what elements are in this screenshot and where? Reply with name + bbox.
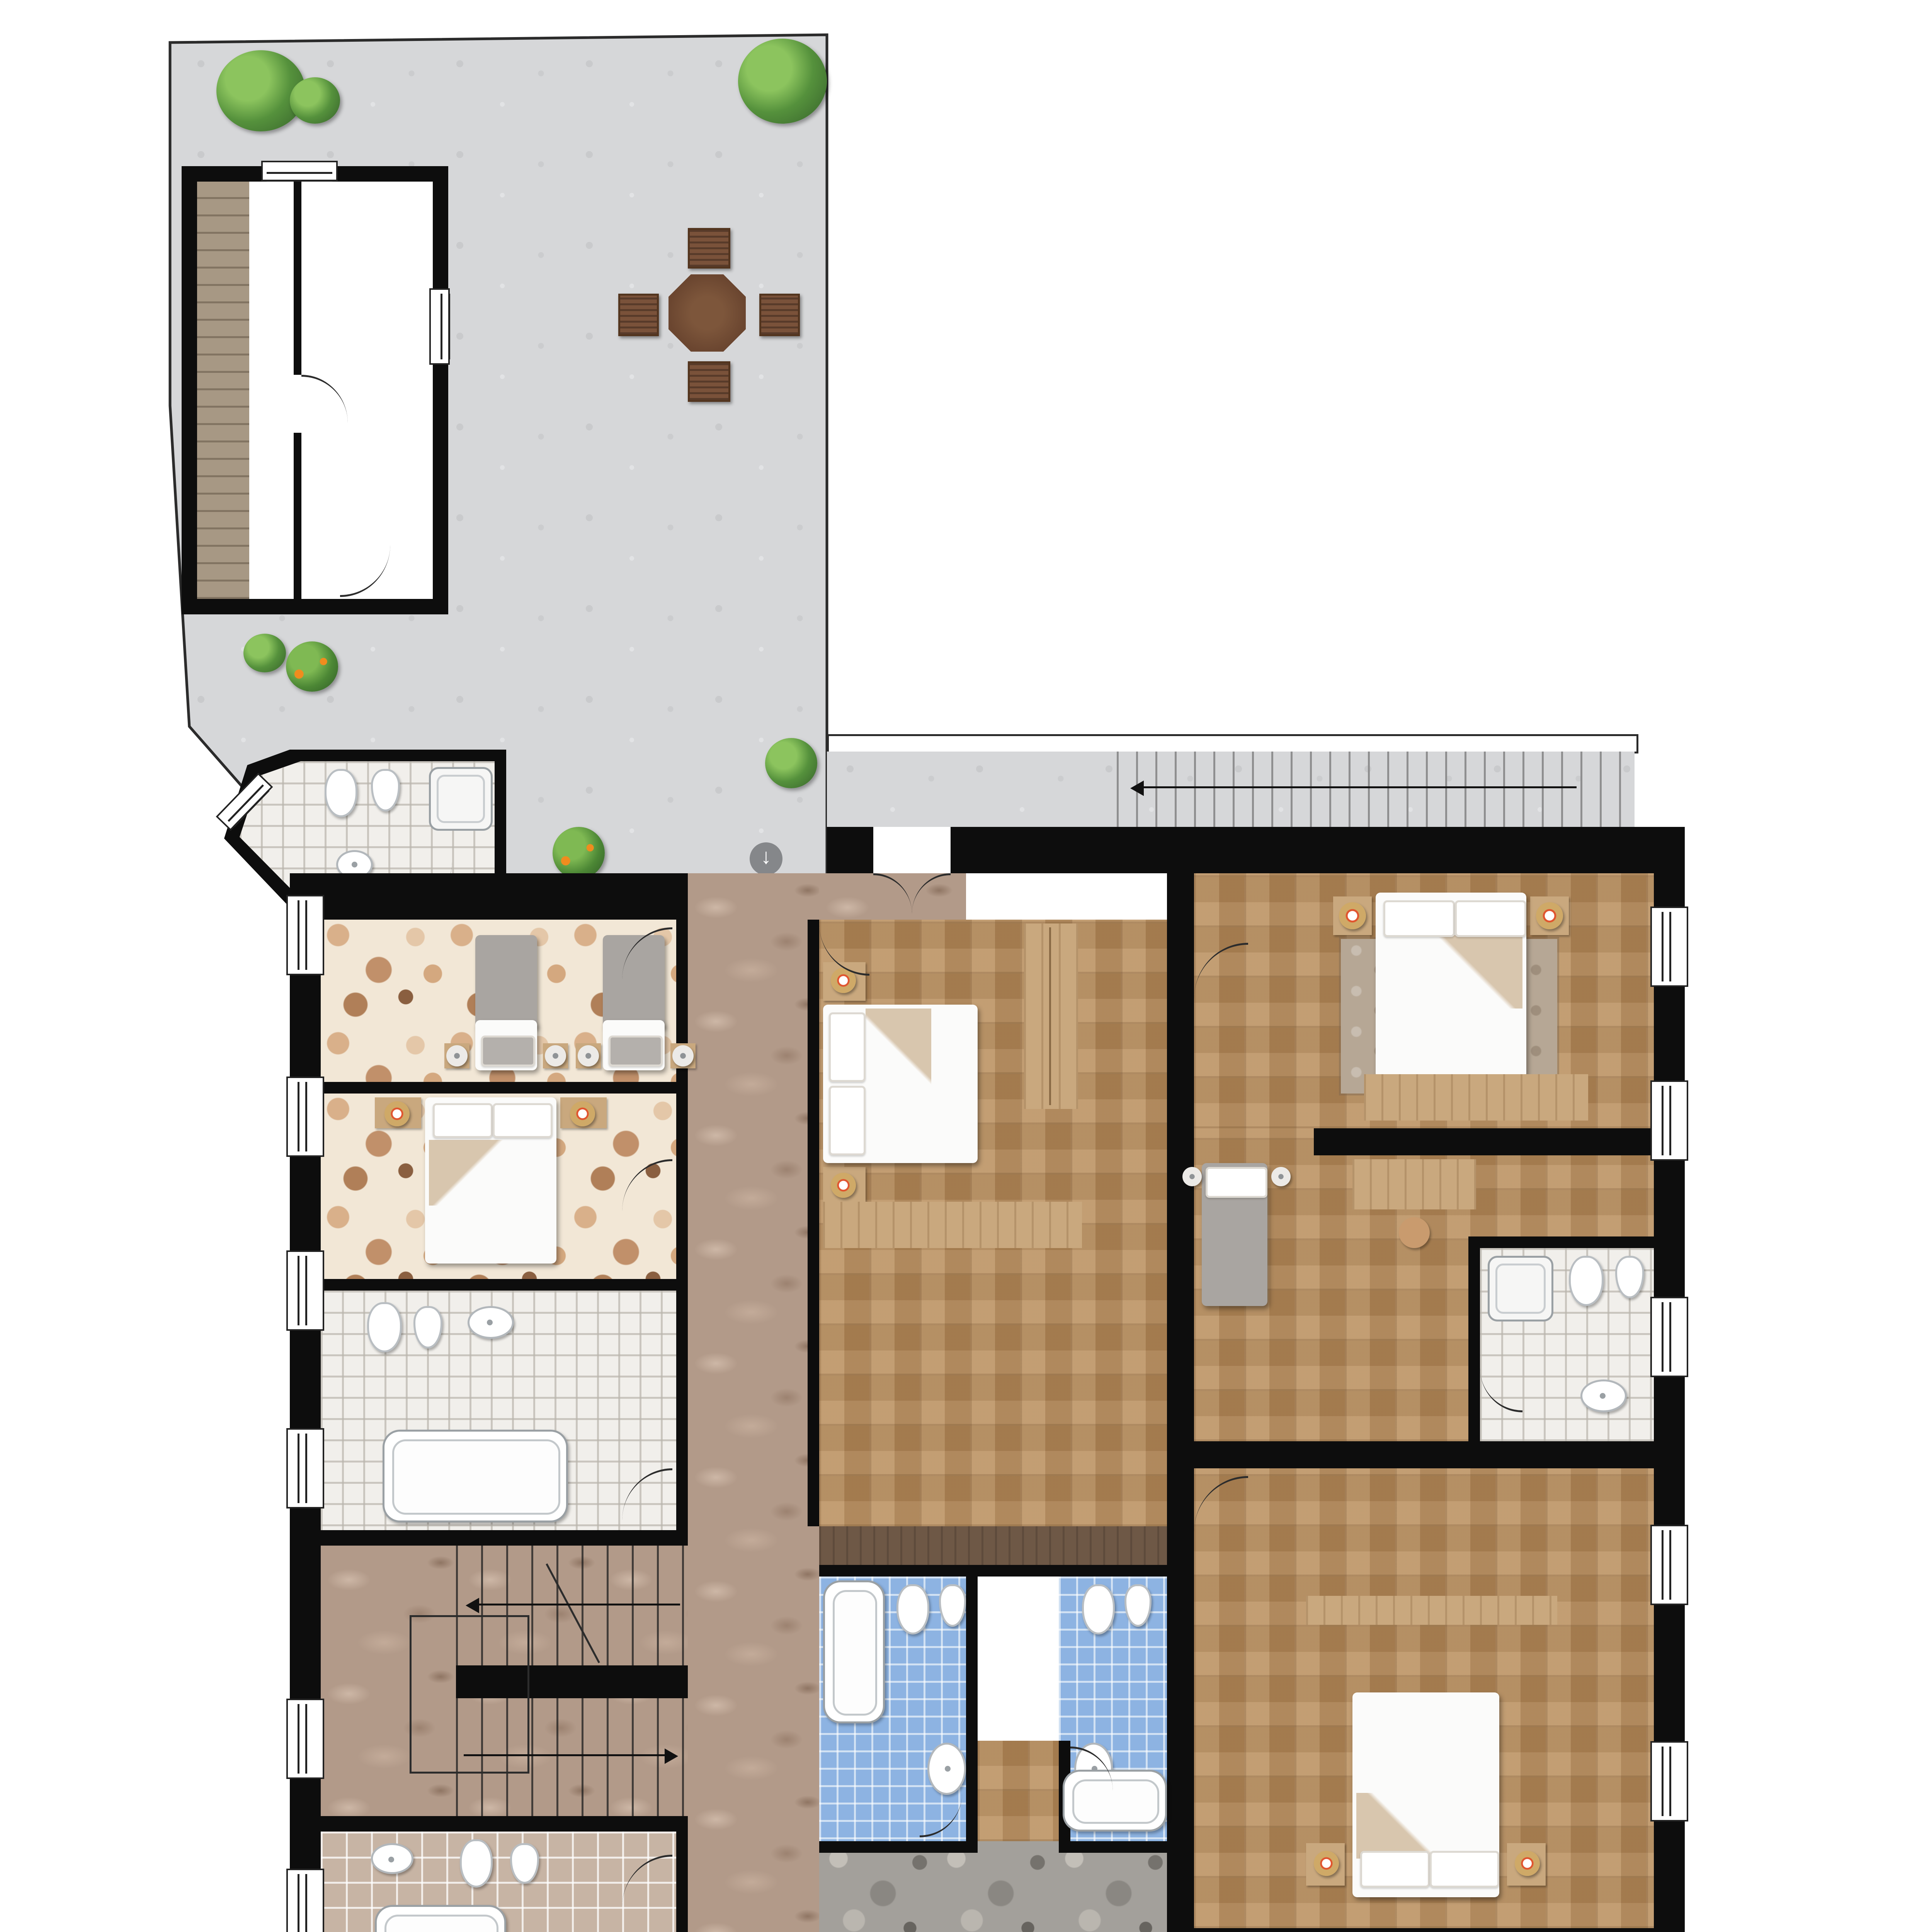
exterior-stair-arrow-line: [1144, 786, 1577, 789]
wall-east-spine: [1167, 873, 1194, 1932]
lamp-e1: [1182, 1167, 1202, 1186]
goldlamp-c2: [831, 1173, 856, 1198]
toilet-blue-right: [1082, 1584, 1115, 1634]
pillow-c1: [829, 1012, 866, 1082]
corridor-floor: [688, 873, 819, 1932]
window-right-4: [1652, 1526, 1687, 1604]
sink-bath-tan-west: [371, 1843, 413, 1874]
bathtub-bath-west: [383, 1430, 568, 1522]
floor-plan: ↓: [0, 0, 1917, 1932]
pillow-f1: [1360, 1851, 1430, 1888]
bath-vestibule-floor: [978, 1741, 1059, 1841]
wall-roomD-roomE: [1314, 1128, 1654, 1155]
window-right-5: [1652, 1743, 1687, 1820]
wall-closet-baths: [819, 1565, 1167, 1577]
wall-roomF-roomG: [1194, 1928, 1654, 1932]
wardrobe-center: [1024, 923, 1078, 1109]
window-left-3: [288, 1252, 323, 1329]
stair-arrow-down: [464, 1754, 665, 1757]
sink-bath-west: [468, 1306, 514, 1339]
arrow-right-icon-stair: [665, 1748, 678, 1764]
goldlamp-f2: [1515, 1851, 1540, 1876]
goldlamp-b1: [384, 1101, 410, 1126]
window-right-3: [1652, 1298, 1687, 1376]
window-left-2: [288, 1078, 323, 1155]
pillow-b1: [433, 1103, 493, 1138]
wall-roomA-roomB: [321, 1082, 676, 1094]
exterior-stair-railing: [827, 734, 1638, 753]
exterior-stair-steps: [1117, 752, 1635, 827]
duvet-fold-b: [429, 1140, 506, 1206]
arrow-left-icon-stair: [466, 1598, 479, 1613]
wall-bathE-north: [1480, 1236, 1654, 1248]
goldlamp-d2: [1536, 902, 1563, 929]
wall-corridor-west: [676, 920, 688, 1530]
bed-twin-1: [475, 935, 537, 1028]
toilet-terrace-bath: [325, 769, 357, 817]
wall-roomE-roomF: [1194, 1441, 1654, 1468]
duvet-fold-c: [866, 1009, 931, 1090]
window-left-1: [288, 896, 323, 974]
sink-blue-left: [927, 1743, 966, 1795]
goldlamp-b2: [570, 1101, 595, 1126]
wall-bath-stairhall: [321, 1530, 688, 1546]
wall-top-right: [827, 827, 1685, 873]
goldlamp-d1: [1339, 902, 1366, 929]
window-left-5: [288, 1700, 323, 1777]
pillow-b2: [493, 1103, 553, 1138]
window-left-6: [288, 1870, 323, 1932]
dresser-center: [823, 1202, 1082, 1248]
duvet-fold-d: [1430, 935, 1522, 1009]
pillow-f2: [1430, 1851, 1499, 1888]
toilet-bath-tan-west: [460, 1839, 493, 1888]
wardrobe-center-line: [1049, 927, 1051, 1105]
pillow-d2: [1455, 900, 1526, 937]
stair-guide: [410, 1615, 529, 1774]
wall-bathblue-hall-left: [819, 1841, 978, 1853]
window-left-4: [288, 1430, 323, 1507]
bathtub-bath-tan-west: [375, 1905, 506, 1932]
wall-bathblue-hall-right: [1059, 1841, 1167, 1853]
pillow-d1: [1383, 900, 1455, 937]
lamp-e2: [1271, 1167, 1291, 1186]
chair-east-desk: [1399, 1217, 1430, 1248]
wall-corridor-west-lower: [676, 1816, 688, 1932]
wall-corridor-east: [808, 920, 819, 1526]
shower-terrace-bath: [429, 767, 493, 831]
dresser-northeast: [1364, 1074, 1588, 1121]
goldlamp-f1: [1314, 1851, 1339, 1876]
toilet-bath-west: [367, 1302, 402, 1352]
lamp-a2: [545, 1045, 566, 1066]
lamp-a4: [672, 1045, 694, 1066]
wall-roomB-bath: [321, 1279, 676, 1291]
wall-stairhall-bathtan: [321, 1816, 688, 1832]
lamp-a1: [446, 1045, 468, 1066]
bathtub-blue-left: [823, 1580, 885, 1723]
sink-bath-east: [1580, 1379, 1627, 1412]
shower-bath-east: [1488, 1256, 1553, 1321]
desk-east: [1352, 1159, 1476, 1209]
duvet-fold-f: [1356, 1793, 1449, 1859]
arrow-left-icon: [1130, 781, 1144, 796]
window-right-1: [1652, 908, 1687, 985]
wall-bathblue-left: [966, 1577, 978, 1841]
pillow-c2: [829, 1086, 866, 1155]
wall-bathE-west: [1468, 1236, 1480, 1441]
shelf-east-double: [1306, 1596, 1557, 1625]
hall-floor: [819, 1841, 1167, 1932]
pillow-twin-1: [481, 1036, 535, 1066]
window-right-2: [1652, 1082, 1687, 1159]
pillow-twin-2: [609, 1036, 663, 1066]
pillow-e1: [1206, 1167, 1267, 1198]
toilet-bath-east: [1569, 1256, 1604, 1306]
entry-door-gap: [873, 827, 951, 873]
toilet-blue-left: [896, 1584, 929, 1634]
stair-arrow-up: [479, 1604, 680, 1606]
lamp-a3: [578, 1045, 599, 1066]
